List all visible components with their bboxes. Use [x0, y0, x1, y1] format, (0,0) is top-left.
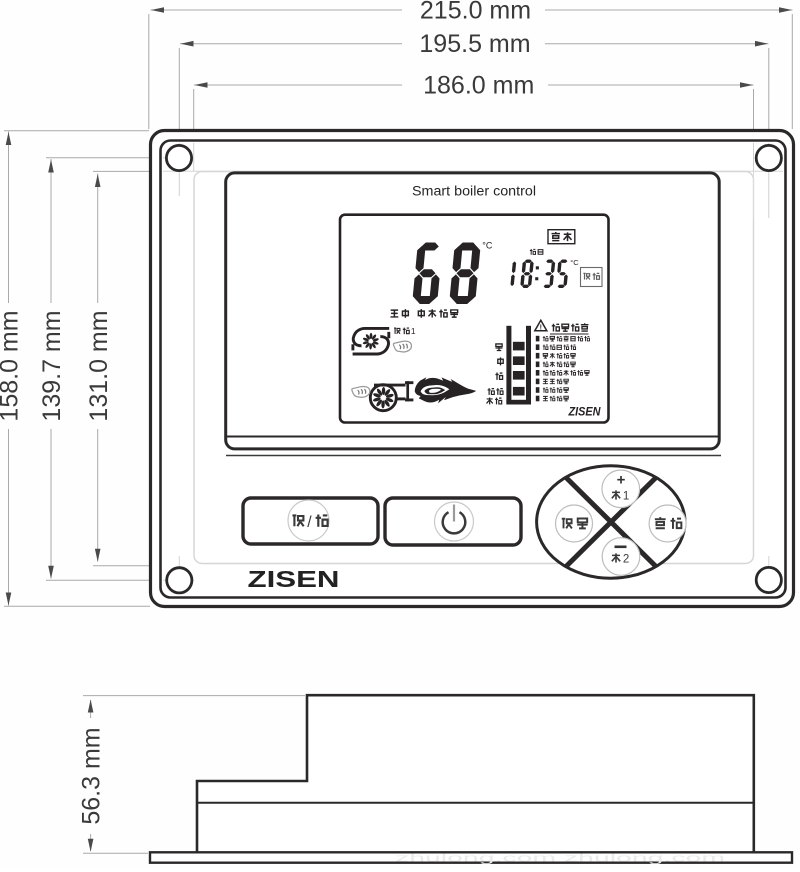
svg-text:131.0 mm: 131.0 mm	[85, 310, 113, 421]
svg-text:+: +	[617, 472, 626, 489]
svg-text:°C: °C	[570, 258, 579, 267]
svg-text:zhulong.com zhulong.com: zhulong.com zhulong.com	[395, 853, 725, 865]
svg-text:°C: °C	[482, 241, 493, 251]
svg-text:ZISEN: ZISEN	[568, 404, 602, 418]
svg-text:!: !	[540, 325, 542, 332]
svg-text:158.0 mm: 158.0 mm	[0, 310, 24, 421]
svg-text:195.5 mm: 195.5 mm	[419, 30, 530, 58]
svg-text:186.0 mm: 186.0 mm	[423, 72, 534, 100]
svg-text:1: 1	[411, 326, 416, 336]
svg-text:Smart boiler control: Smart boiler control	[412, 184, 536, 199]
svg-text:2: 2	[623, 554, 629, 566]
svg-text:/: /	[307, 514, 312, 531]
svg-text:ZISEN: ZISEN	[248, 566, 340, 592]
svg-text:215.0 mm: 215.0 mm	[420, 0, 531, 25]
svg-text:139.7 mm: 139.7 mm	[38, 310, 66, 421]
svg-text:56.3 mm: 56.3 mm	[78, 727, 106, 824]
svg-text:1: 1	[623, 491, 629, 503]
